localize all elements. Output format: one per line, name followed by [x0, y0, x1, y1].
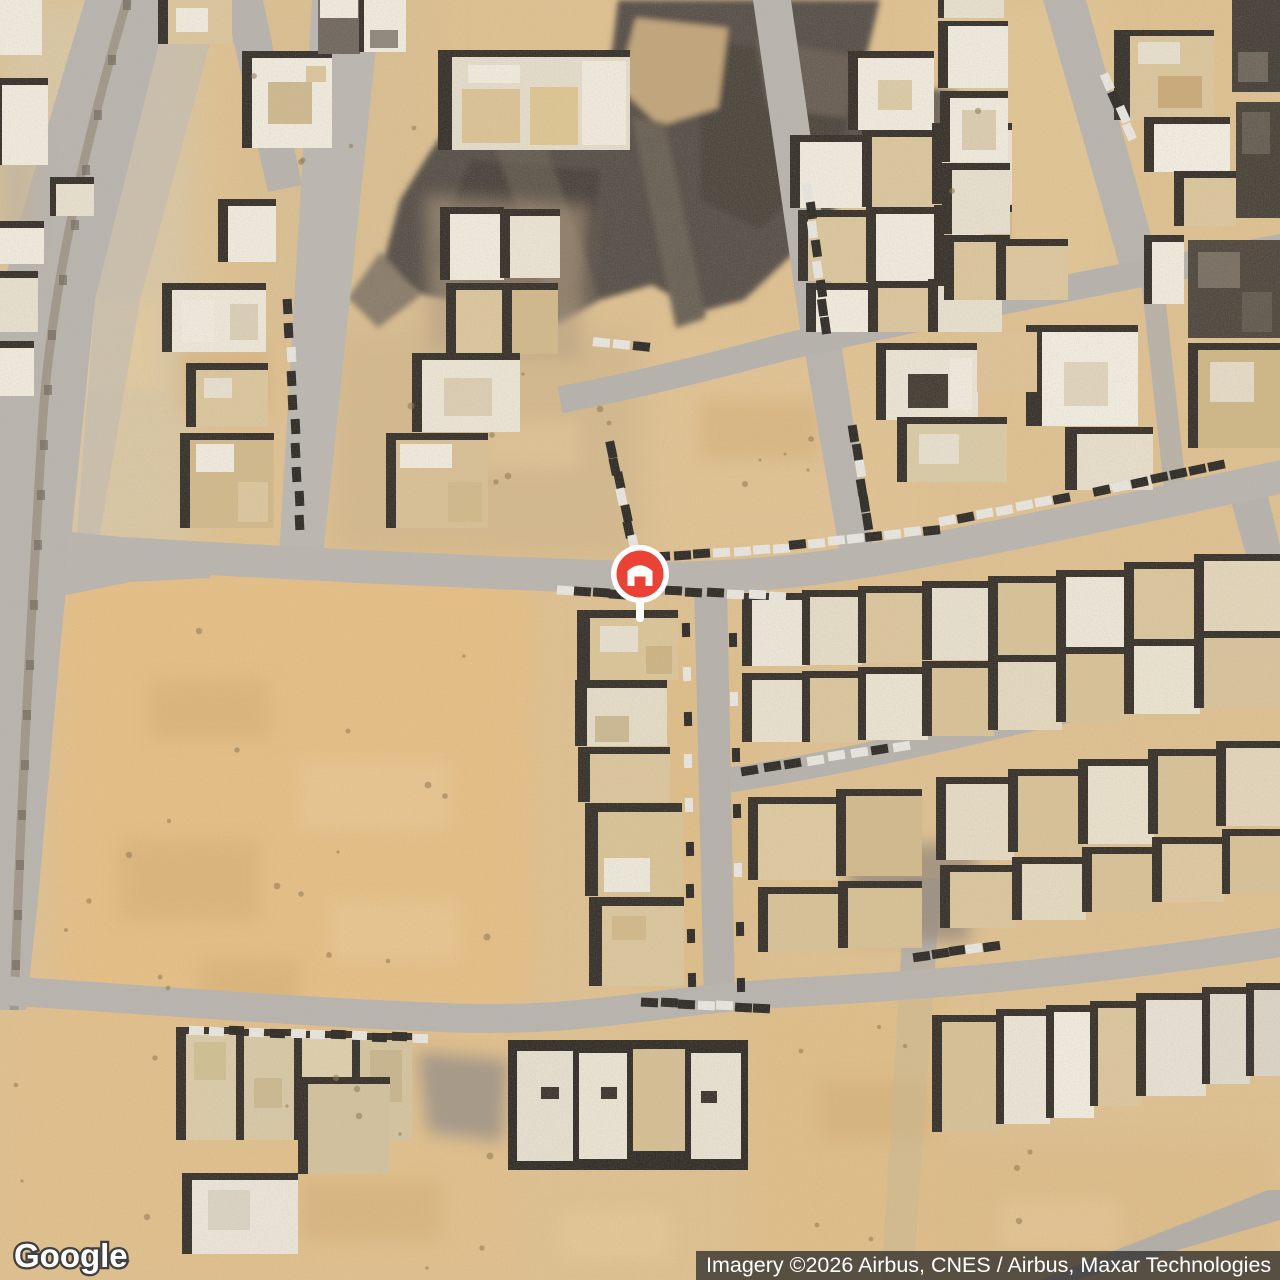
svg-text:Imagery ©2026 Airbus, CNES / A: Imagery ©2026 Airbus, CNES / Airbus, Max…	[706, 1253, 1271, 1277]
svg-text:Google: Google	[14, 1237, 128, 1274]
